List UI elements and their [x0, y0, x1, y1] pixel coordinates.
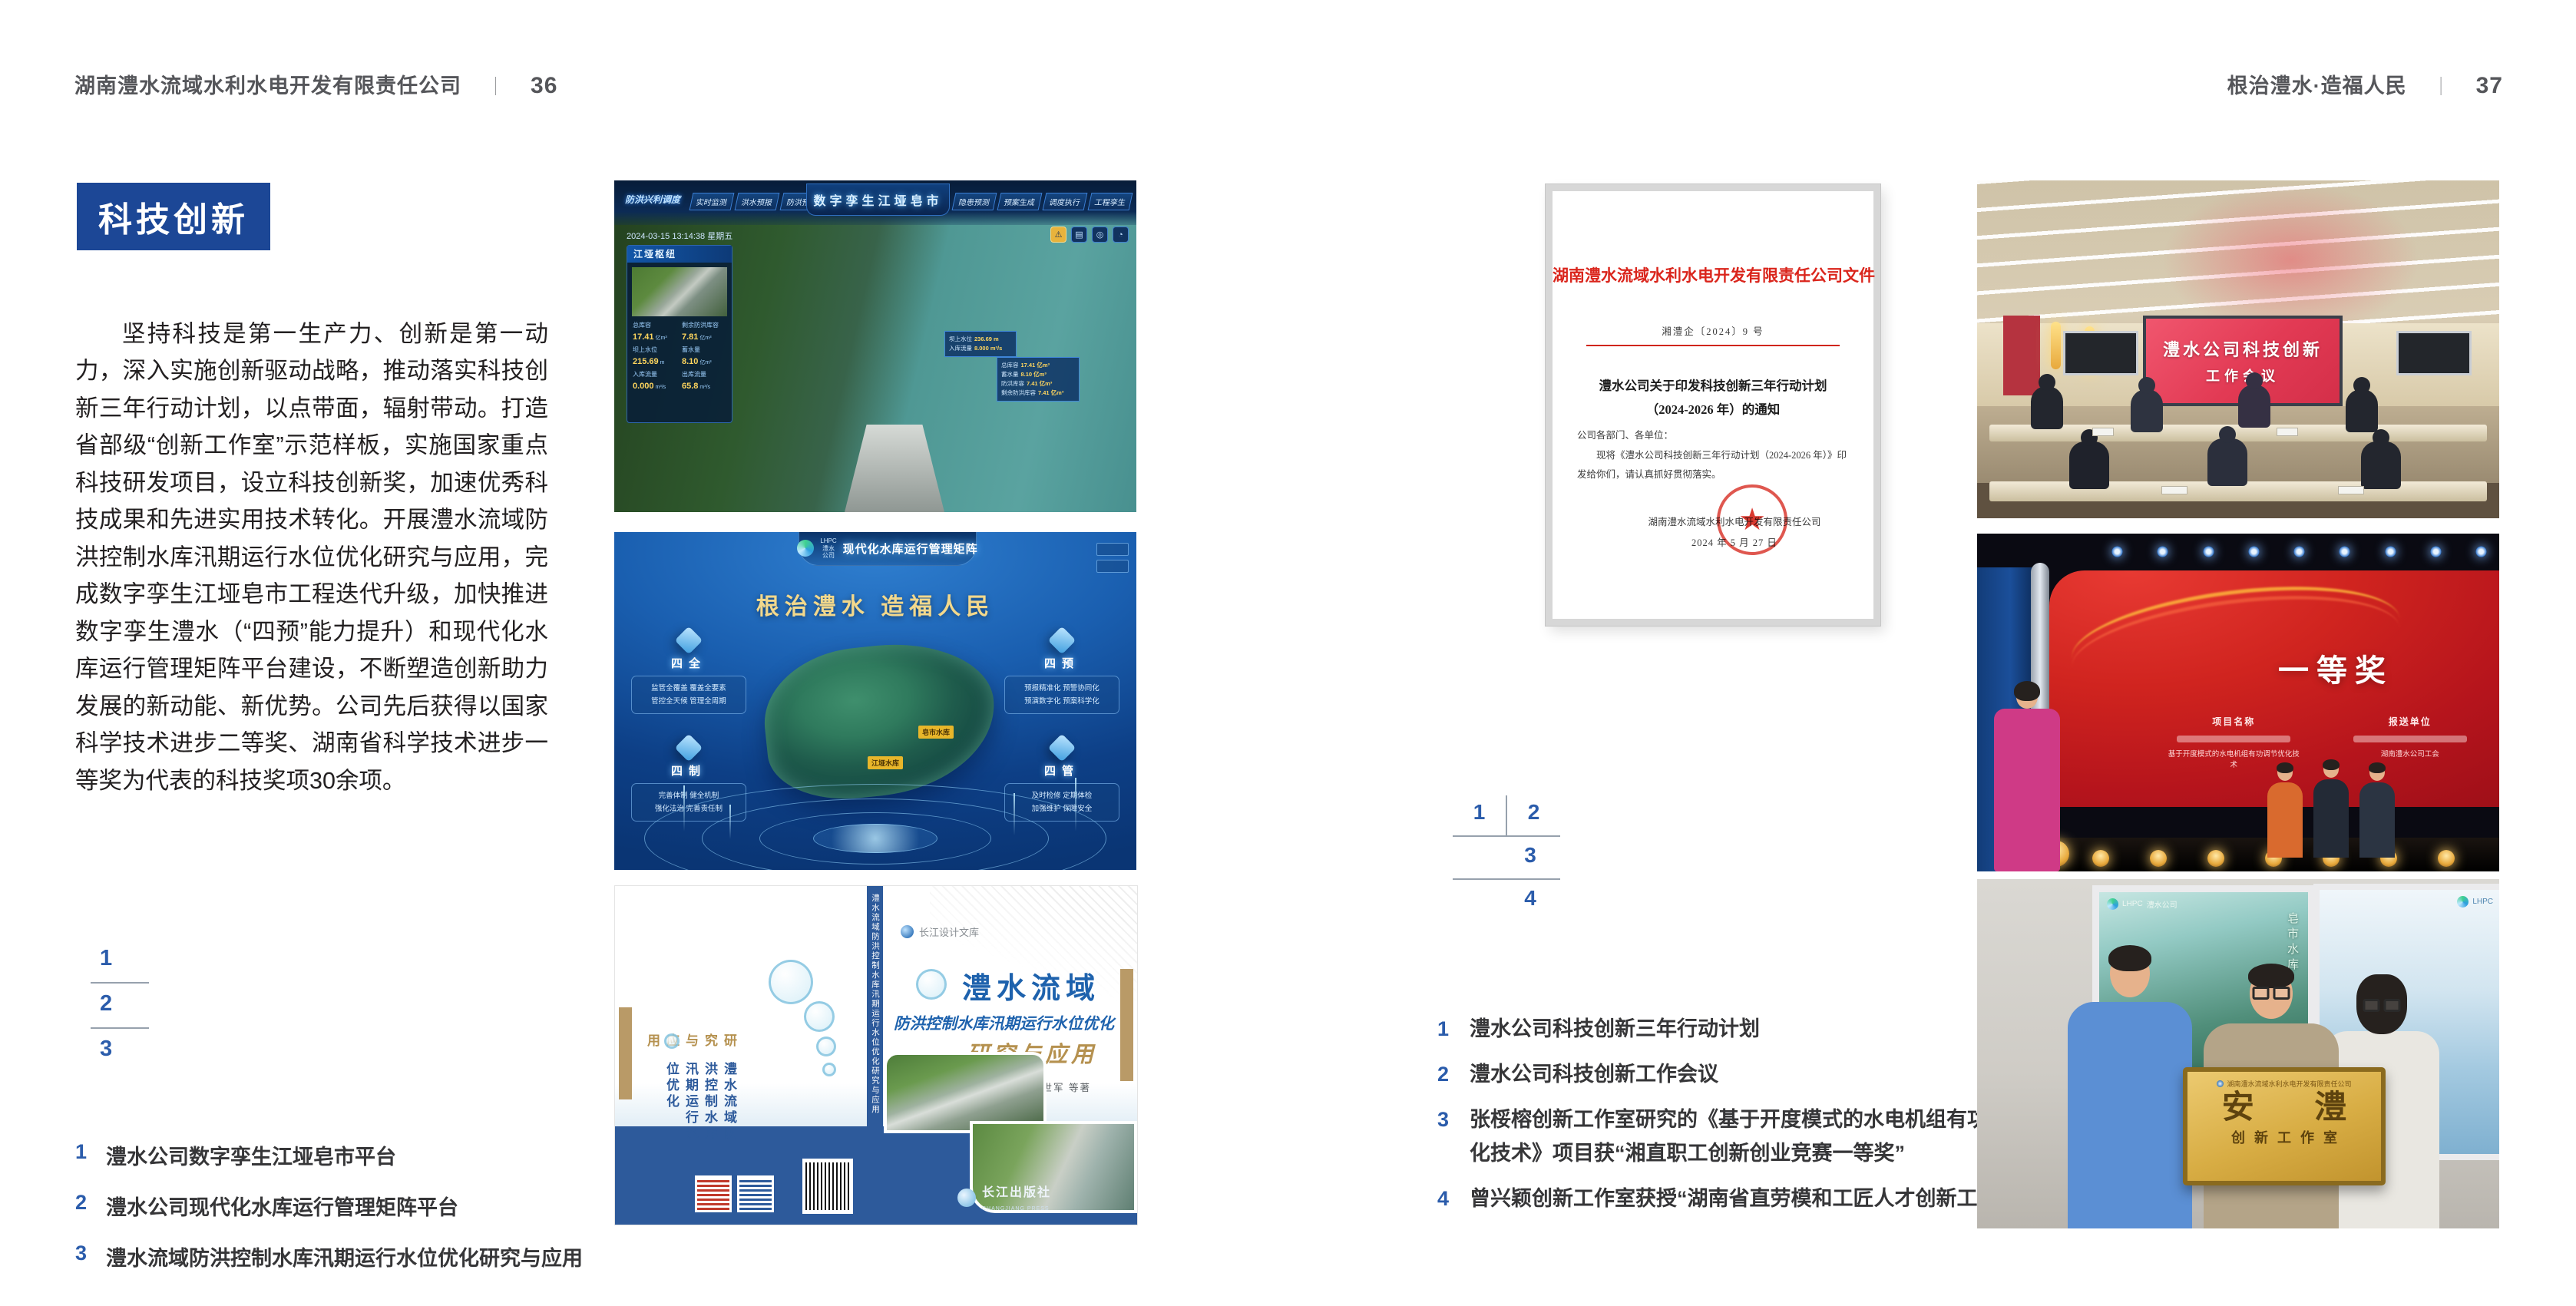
header-separator: ｜ [2432, 77, 2451, 98]
caption-text: 澧水公司科技创新三年行动计划 [1470, 1012, 2061, 1046]
stage-light-dot [2157, 546, 2168, 557]
document-signer: 湖南澧水流域水利水电开发有限责任公司 [1553, 514, 1873, 528]
stat-unit: m³/s [699, 385, 710, 390]
lens [2273, 987, 2290, 1000]
suit [2313, 779, 2349, 858]
caption-text: 澧水公司科技创新工作会议 [1470, 1057, 2061, 1091]
matrix-quadrant: 四预 预报精准化 预警协同化 预演数字化 预案科学化 [1004, 630, 1119, 714]
award-column-header: 项目名称 [2164, 715, 2303, 728]
host-figure [1994, 684, 2060, 871]
book-title-main: 澧水流域 [962, 964, 1100, 1007]
user-icon: ◔ [1113, 226, 1129, 243]
stat-label: 坝上水位 [633, 346, 677, 354]
popup-row: 剩余防洪库容7.41 亿m³ [1001, 388, 1075, 398]
stage-bollard-light [2092, 850, 2109, 867]
captions-right: 1 澧水公司科技创新三年行动计划 2 澧水公司科技创新工作会议 3 张桵榕创新工… [1437, 1012, 2061, 1227]
stage-bollard-light [2150, 850, 2167, 867]
caption-number: 2 [75, 1191, 106, 1221]
award-item: 湖南澧水公司工会 [2341, 749, 2479, 760]
dashboard-title: 数字孪生江垭皂市 [806, 184, 950, 216]
running-head-left: 湖南澧水流域水利水电开发有限责任公司 ｜ 36 [74, 69, 557, 99]
laptop [2338, 486, 2364, 494]
stat-unit: 亿m³ [656, 336, 667, 341]
popup-row: 坝上水位236.69 m [949, 335, 1012, 344]
dashboard-tabs-left: 实时监测 洪水预报 防洪预警 [691, 193, 823, 210]
plaque-org-text: 湖南澧水流域水利水电开发有限责任公司 [2227, 1079, 2351, 1089]
stage-light-dot [2293, 546, 2305, 557]
dashboard-tabs-right: 隐患预测 预案生成 调度执行 工程孪生 [954, 193, 1131, 210]
awardee-figure [2267, 764, 2303, 858]
caption-row: 3 张桵榕创新工作室研究的《基于开度模式的水电机组有功调节优化技术》项目获“湘直… [1437, 1103, 2061, 1170]
caption-number: 4 [1437, 1182, 1470, 1215]
dashboard-side-panel: 江垭枢纽 总库容17.41亿m³ 剩余防洪库容7.81亿m³ 坝上水位215.6… [627, 245, 732, 423]
official-seal: ★ [1717, 484, 1787, 555]
page-number-left: 36 [531, 73, 557, 98]
side-tv-screen [2063, 331, 2138, 375]
map-label-reservoir: 江垭水库 [868, 756, 903, 769]
popup-value: 7.41 亿m³ [1027, 380, 1052, 387]
attendee-silhouette [2361, 441, 2401, 489]
body-paragraph: 坚持科技是第一生产力、创新是第一动力，深入实施创新驱动战略，推动落实科技创新三年… [75, 316, 548, 800]
publisher-name-en: CHANGJIANG PRESS [982, 1206, 1050, 1212]
figure-index-row: 1 2 [1453, 795, 1560, 837]
glasses [2253, 987, 2290, 1000]
stat-label: 入库流量 [633, 370, 677, 379]
lens [2384, 999, 2401, 1012]
bubble [822, 1063, 836, 1076]
book-spine: 澧水流域防洪控制水库汛期运行水位优化研究与应用 [867, 886, 883, 1225]
dashboard-tab: 实时监测 [689, 193, 735, 210]
popup-row: 入库流量8.000 m³/s [949, 344, 1012, 353]
series-name: 长江设计文库 [919, 924, 979, 939]
caption-text: 张桵榕创新工作室研究的《基于开度模式的水电机组有功调节优化技术》项目获“湘直职工… [1470, 1103, 2061, 1170]
company-logo-icon [797, 540, 814, 557]
qr-pattern [697, 1178, 729, 1210]
captions-left: 1 澧水公司数字孪生江垭皂市平台 2 澧水公司现代化水库运行管理矩阵平台 3 澧… [75, 1140, 583, 1292]
slogan-title: 根治澧水·造福人民 [2227, 74, 2407, 98]
plaque-org-line: 湖南澧水流域水利水电开发有限责任公司 [2187, 1079, 2381, 1089]
screen-text-line2: 工作会议 [2206, 365, 2280, 385]
popup-value: 8.10 亿m³ [1021, 371, 1047, 378]
quadrant-icon [675, 627, 703, 655]
qr-pattern [739, 1178, 772, 1210]
document-title-line1: 澧水公司关于印发科技创新三年行动计划 [1553, 374, 1873, 398]
document-body: 公司各部门、各单位： 现将《澧水公司科技创新三年行动计划（2024-2026 年… [1577, 426, 1849, 484]
figure-index-item: 1 [91, 938, 149, 984]
map-popup: 总库容17.41 亿m³ 蓄水量8.10 亿m³ 防洪库容7.41 亿m³ 剩余… [997, 357, 1080, 402]
matrix-quadrant: 四全 监管全覆盖 覆盖全要素 管控全天候 管理全周期 [631, 630, 746, 714]
dashboard-tab: 工程孪生 [1088, 193, 1133, 210]
stat-unit: m³/s [656, 385, 666, 390]
quadrant-icon [1048, 627, 1076, 655]
figure-index-item: 1 [1453, 795, 1507, 835]
stage-light-dot [2111, 546, 2123, 557]
figure-index-right: 1 2 3 4 [1453, 795, 1560, 921]
quadrant-icon [675, 734, 703, 762]
document-title-line2: （2024-2026 年）的通知 [1553, 398, 1873, 422]
stat-unit: m [660, 360, 665, 365]
matrix-button [1096, 543, 1129, 556]
qr-code-blue [737, 1175, 774, 1212]
photo-digital-twin-dashboard: 防洪兴利调度 实时监测 洪水预报 防洪预警 数字孪生江垭皂市 隐患预测 预案生成… [614, 180, 1136, 512]
stat: 坝上水位215.69m [633, 346, 677, 368]
man-blue-polo [2068, 950, 2192, 1228]
stage-bollard-light [2438, 850, 2455, 867]
company-logo-icon [2457, 896, 2469, 908]
stat-value: 215.69 [633, 357, 659, 366]
red-wall-panel [2003, 316, 2040, 395]
document-date: 2024 年 5 月 27 日 [1553, 534, 1873, 549]
photo-award-ceremony: 一等奖 项目名称 基于开度模式的水电机组有功调节优化技术 报送单位 湖南澧水公司… [1977, 534, 2499, 871]
quadrant-title: 四全 [631, 655, 746, 671]
side-tv-screen [2396, 331, 2472, 375]
caption-number: 2 [1437, 1057, 1470, 1091]
popup-value: 17.41 亿m³ [1021, 362, 1050, 369]
section-badge: 科技创新 [77, 183, 270, 250]
award-column: 报送单位 湖南澧水公司工会 [2341, 715, 2479, 772]
stat-value: 7.81 [682, 332, 698, 342]
stage-bollard-light [2207, 850, 2224, 867]
quadrant-title: 四管 [1004, 762, 1119, 779]
dress [1994, 709, 2060, 871]
document-red-rule [1586, 345, 1840, 346]
photo-workshop-plaque: LHPC 澧水公司 皂市水库 LHPC [1977, 879, 2499, 1228]
caption-number: 1 [75, 1140, 106, 1170]
figure-index-item: 2 [91, 984, 149, 1029]
attendee-silhouette [2207, 438, 2247, 486]
stat-value: 8.10 [682, 357, 698, 366]
attendee-silhouette [2069, 441, 2109, 489]
matrix-header: LHPC 澧水公司 现代化水库运行管理矩阵 [799, 532, 977, 566]
quadrant-items: 监管全覆盖 覆盖全要素 管控全天候 管理全周期 [631, 676, 746, 714]
front-cover-accent-bar [1120, 969, 1133, 1081]
quadrant-title: 四预 [1004, 655, 1119, 671]
company-logo: LHPC 澧水公司 [2107, 898, 2178, 910]
bubble [804, 1001, 835, 1032]
stage-light-dot [2248, 546, 2260, 557]
document-reference-number: 湘澧企〔2024〕9 号 [1553, 323, 1873, 338]
bubble [916, 969, 947, 1000]
attendee-silhouette [2131, 389, 2163, 432]
attendee-silhouette [2346, 389, 2378, 432]
caption-text: 澧水公司数字孪生江垭皂市平台 [106, 1140, 396, 1170]
map-popup: 坝上水位236.69 m 入库流量8.000 m³/s [944, 331, 1017, 357]
figure-index-item: 2 [1507, 795, 1560, 835]
brand-en: LHPC [2472, 898, 2493, 906]
back-cover-title: 研究与应用 澧水流域防洪控制水库汛期运行水位优化 [643, 918, 739, 1149]
stat: 剩余防洪库容7.81亿m³ [682, 321, 726, 343]
wall-lamp [2051, 322, 2061, 369]
ring-glow [813, 824, 937, 853]
poster-label: 皂市水库 [2284, 912, 2300, 974]
panel-title: 江垭枢纽 [627, 246, 732, 263]
popup-label: 剩余防洪库容 [1001, 389, 1036, 396]
series-logo: 长江设计文库 [901, 924, 979, 939]
stage-lights [2111, 546, 2487, 557]
popup-value: 7.41 亿m³ [1038, 389, 1063, 396]
book-title-sub: 防洪控制水库汛期运行水位优化 [894, 1010, 1114, 1033]
glasses [2363, 999, 2401, 1012]
figure-index-item: 4 [1453, 880, 1560, 921]
stat: 蓄水量8.10亿m³ [682, 346, 726, 368]
matrix-button [1096, 560, 1129, 573]
stage-light-dot [2203, 546, 2214, 557]
stat-label: 蓄水量 [682, 346, 726, 354]
dashboard-tab: 洪水预报 [735, 193, 780, 210]
back-cover-accent-bar [619, 1007, 632, 1099]
award-text-bar [2177, 736, 2290, 742]
dam-thumbnail [632, 267, 727, 316]
stage-light-dot [2385, 546, 2396, 557]
dashboard-tab: 预案生成 [997, 193, 1043, 210]
page-number-right: 37 [2476, 73, 2503, 98]
plaque-main-text: 安 澧 [2187, 1089, 2381, 1127]
quadrant-line: 管控全天候 管理全周期 [635, 695, 742, 708]
bubble [816, 1037, 836, 1056]
popup-row: 总库容17.41 亿m³ [1001, 361, 1075, 370]
figure-index-left: 1 2 3 [91, 938, 149, 1073]
dashboard-timestamp: 2024-03-15 13:14:38 星期五 [627, 230, 732, 242]
figure-index-item: 3 [1453, 837, 1560, 880]
stat-unit: 亿m³ [699, 360, 711, 365]
publisher-name: 长江出版社 [982, 1186, 1051, 1199]
caption-row: 3 澧水流域防洪控制水库汛期运行水位优化研究与应用 [75, 1242, 583, 1271]
uniform [2267, 782, 2303, 858]
hologram-rings [637, 781, 1113, 870]
stat-label: 总库容 [633, 321, 677, 329]
figure-index-item: 3 [91, 1029, 149, 1073]
popup-label: 入库流量 [949, 345, 972, 352]
award-text-bar [2353, 736, 2467, 742]
stage-light-dot [2430, 546, 2442, 557]
popup-value: 236.69 m [974, 336, 999, 342]
laptop [2277, 428, 2298, 436]
qr-codes [695, 1175, 774, 1212]
dashboard-tab: 调度执行 [1043, 193, 1088, 210]
caption-row: 2 澧水公司现代化水库运行管理矩阵平台 [75, 1191, 583, 1221]
award-column-header: 报送单位 [2341, 715, 2479, 728]
company-title: 湖南澧水流域水利水电开发有限责任公司 [74, 74, 461, 98]
photo-official-document: 湖南澧水流域水利水电开发有限责任公司文件 湘澧企〔2024〕9 号 澧水公司关于… [1546, 184, 1880, 626]
barcode [802, 1159, 853, 1214]
locate-icon: ◎ [1092, 226, 1108, 243]
brochure-spread: 湖南澧水流域水利水电开发有限责任公司 ｜ 36 根治澧水·造福人民 ｜ 37 科… [0, 0, 2576, 1306]
header-separator: ｜ [487, 77, 506, 98]
popup-row: 防洪库容7.41 亿m³ [1001, 379, 1075, 388]
document-paragraph: 现将《澧水公司科技创新三年行动计划（2024-2026 年）》印发给你们，请认真… [1577, 446, 1849, 484]
caption-row: 2 澧水公司科技创新工作会议 [1437, 1057, 2061, 1091]
stat-unit: 亿m³ [699, 336, 711, 341]
caption-text: 澧水流域防洪控制水库汛期运行水位优化研究与应用 [106, 1242, 583, 1271]
hair [2248, 964, 2294, 988]
stat-value: 17.41 [633, 332, 654, 342]
plaque-sub-text: 创新工作室 [2187, 1127, 2381, 1147]
dashboard-corner-label: 防洪兴利调度 [625, 193, 680, 206]
document-salutation: 公司各部门、各单位： [1577, 426, 1849, 445]
bubble [664, 1033, 680, 1049]
qr-code-red [695, 1175, 732, 1212]
matrix-title: 现代化水库运行管理矩阵 [843, 541, 978, 557]
series-logo-icon [901, 925, 914, 938]
caption-number: 3 [75, 1242, 106, 1271]
layers-icon: ▤ [1071, 226, 1087, 243]
quadrant-line: 监管全覆盖 覆盖全要素 [635, 682, 742, 695]
quadrant-title: 四制 [631, 762, 746, 779]
quadrant-items: 预报精准化 预警协同化 预演数字化 预案科学化 [1004, 676, 1119, 714]
quadrant-line: 预演数字化 预案科学化 [1008, 695, 1116, 708]
back-title-gold: 研究与应用 [643, 1033, 739, 1057]
caption-text: 曾兴颖创新工作室获授“湖南省直劳模和工匠人才创新工作室” [1470, 1182, 2061, 1215]
brand-cn: 澧水公司 [2147, 898, 2178, 910]
stat-label: 出库流量 [682, 370, 726, 379]
document-red-header: 湖南澧水流域水利水电开发有限责任公司文件 [1553, 263, 1873, 286]
hair [2277, 762, 2293, 773]
quadrant-line: 预报精准化 预警协同化 [1008, 682, 1116, 695]
publisher-logo-icon [957, 1189, 976, 1207]
brand-cn: 澧水公司 [822, 545, 835, 560]
brand-en: LHPC [2122, 900, 2143, 908]
stat: 出库流量65.8m³/s [682, 370, 726, 392]
popup-label: 总库容 [1001, 362, 1019, 369]
popup-label: 蓄水量 [1001, 371, 1019, 378]
photo-book-cover: 研究与应用 澧水流域防洪控制水库汛期运行水位优化 澧水流域防洪控制水库汛期运行水… [614, 885, 1138, 1225]
awardee-figure [2313, 761, 2349, 858]
star-icon: ★ [1738, 504, 1766, 535]
company-logo-icon [2107, 898, 2118, 910]
laptop [2092, 428, 2114, 436]
back-title-blue: 澧水流域防洪控制水库汛期运行水位优化 [643, 1062, 739, 1149]
attendee-silhouette [2238, 385, 2270, 428]
hair [2323, 759, 2340, 770]
brand-en: LHPC [820, 537, 836, 544]
popup-row: 蓄水量8.10 亿m³ [1001, 370, 1075, 379]
hair [2108, 945, 2151, 971]
matrix-slogan: 根治澧水 造福人民 [614, 587, 1136, 621]
stage-light-dot [2339, 546, 2350, 557]
dashboard-toolbar-icons: ⚠ ▤ ◎ ◔ [1050, 226, 1129, 243]
popup-label: 防洪库容 [1001, 380, 1024, 387]
map-label-reservoir: 皂市水库 [918, 726, 954, 739]
company-logo-text: LHPC 澧水公司 [820, 537, 836, 560]
suit [2359, 782, 2395, 858]
caption-text: 澧水公司现代化水库运行管理矩阵平台 [106, 1191, 458, 1221]
popup-label: 坝上水位 [949, 336, 972, 342]
plaque-logo-icon [2217, 1080, 2224, 1087]
lens [2253, 987, 2270, 1000]
laptop [2161, 486, 2187, 494]
stat: 总库容17.41亿m³ [633, 321, 677, 343]
dashboard-tab: 隐患预测 [952, 193, 997, 210]
photo-innovation-meeting: 澧水公司科技创新 工作会议 [1977, 180, 2499, 518]
caption-row: 1 澧水公司科技创新三年行动计划 [1437, 1012, 2061, 1046]
caption-number: 3 [1437, 1103, 1470, 1170]
caption-number: 1 [1437, 1012, 1470, 1046]
panel-stats: 总库容17.41亿m³ 剩余防洪库容7.81亿m³ 坝上水位215.69m 蓄水… [627, 321, 732, 392]
company-logo: LHPC [2457, 896, 2493, 908]
screen-text-line1: 澧水公司科技创新 [2163, 336, 2323, 361]
caption-row: 4 曾兴颖创新工作室获授“湖南省直劳模和工匠人才创新工作室” [1437, 1182, 2061, 1215]
barcode-stripes [805, 1162, 850, 1210]
award-title: 一等奖 [2278, 646, 2393, 690]
stat-label: 剩余防洪库容 [682, 321, 726, 329]
stat: 入库流量0.000m³/s [633, 370, 677, 392]
gold-plaque: 湖南澧水流域水利水电开发有限责任公司 安 澧 创新工作室 [2183, 1067, 2386, 1185]
publisher-text: 长江出版社 CHANGJIANG PRESS [982, 1182, 1051, 1214]
stat-value: 65.8 [682, 382, 698, 391]
stat-value: 0.000 [633, 382, 654, 391]
publisher-logo: 长江出版社 CHANGJIANG PRESS [957, 1182, 1051, 1214]
blue-polo-shirt [2068, 1002, 2192, 1228]
stage-light-dot [2475, 546, 2487, 557]
alert-icon: ⚠ [1050, 226, 1066, 243]
dam-illustration [845, 425, 944, 512]
photo-matrix-platform: LHPC 澧水公司 现代化水库运行管理矩阵 根治澧水 造福人民 皂市水库 江垭水… [614, 532, 1136, 870]
popup-value: 8.000 m³/s [974, 345, 1002, 352]
awardee-figure [2359, 764, 2395, 858]
hair [2014, 681, 2040, 701]
attendee-silhouette [2031, 386, 2063, 429]
lens [2363, 999, 2380, 1012]
running-head-right: 根治澧水·造福人民 ｜ 37 [2227, 69, 2503, 99]
quadrant-icon [1048, 734, 1076, 762]
bubble [769, 960, 813, 1004]
caption-row: 1 澧水公司数字孪生江垭皂市平台 [75, 1140, 583, 1170]
document-title: 澧水公司关于印发科技创新三年行动计划 （2024-2026 年）的通知 [1553, 374, 1873, 422]
hair [2369, 762, 2386, 773]
